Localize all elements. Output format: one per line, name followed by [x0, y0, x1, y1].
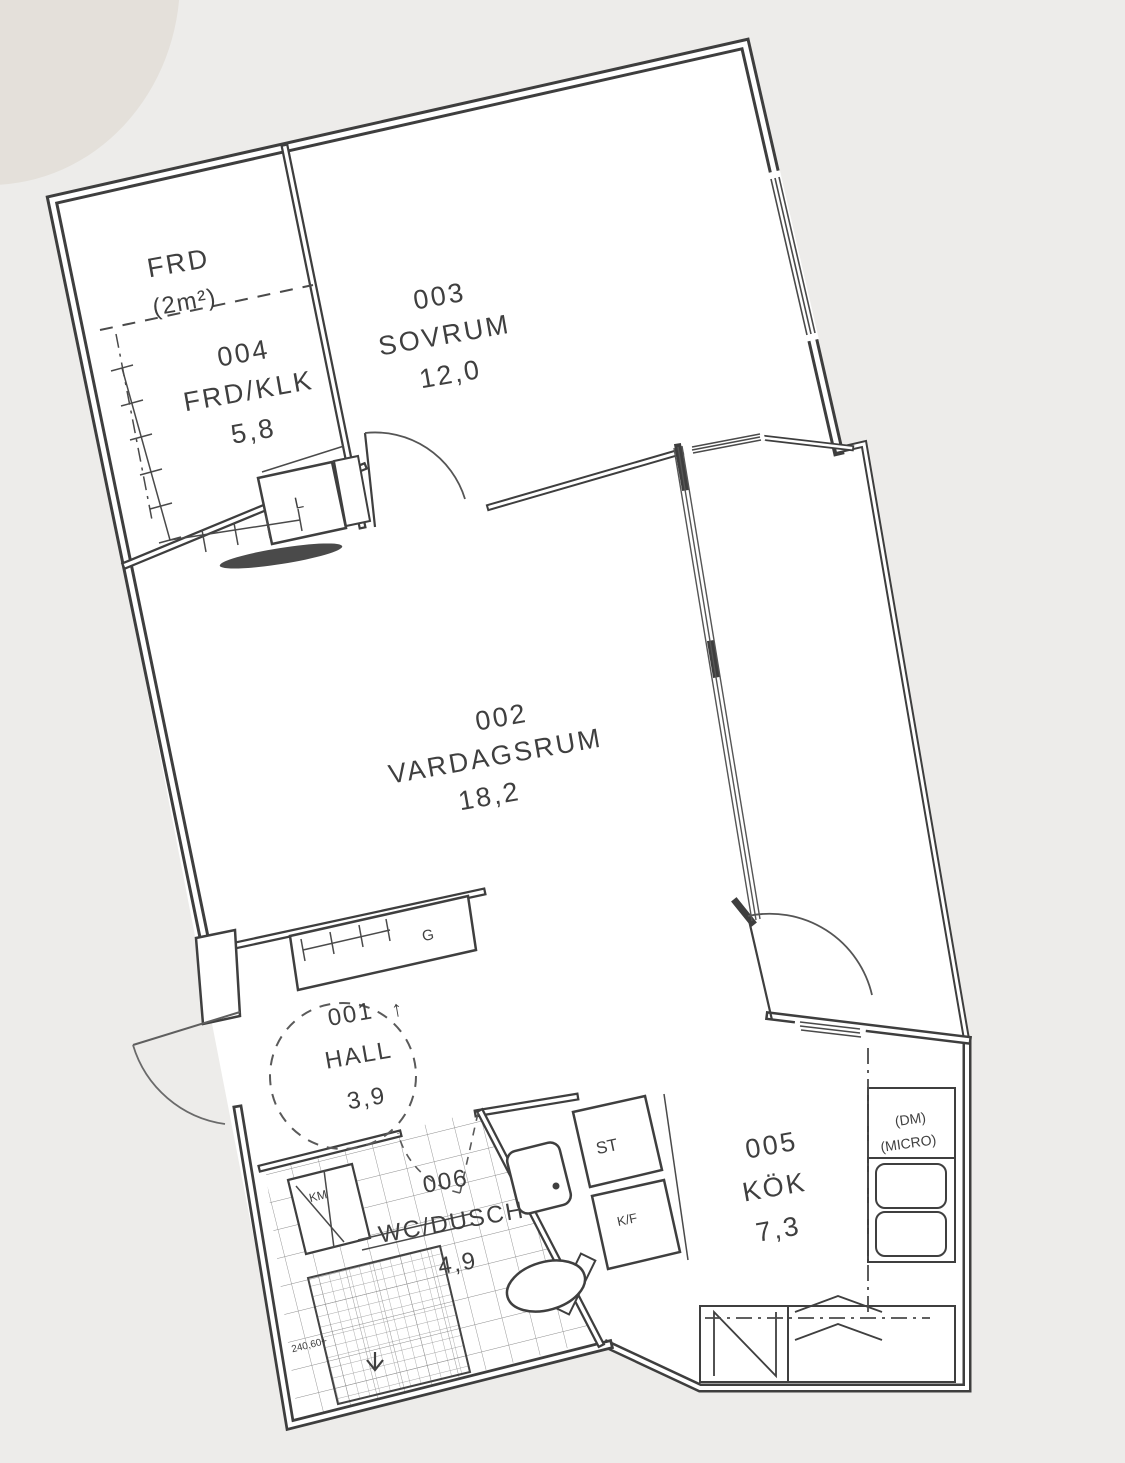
kitchen-sink-bowl: [876, 1164, 946, 1208]
kitchen-sink-bowl: [876, 1212, 946, 1256]
floor-plan-drawing: FRD (2m²) 004 FRD/KLK 5,8 003 SOVRUM 12,…: [0, 0, 1125, 1463]
floor-plan-page: FRD (2m²) 004 FRD/KLK 5,8 003 SOVRUM 12,…: [0, 0, 1125, 1463]
cleaning-closet: [573, 1096, 662, 1187]
entrance-pilaster: [196, 930, 240, 1024]
